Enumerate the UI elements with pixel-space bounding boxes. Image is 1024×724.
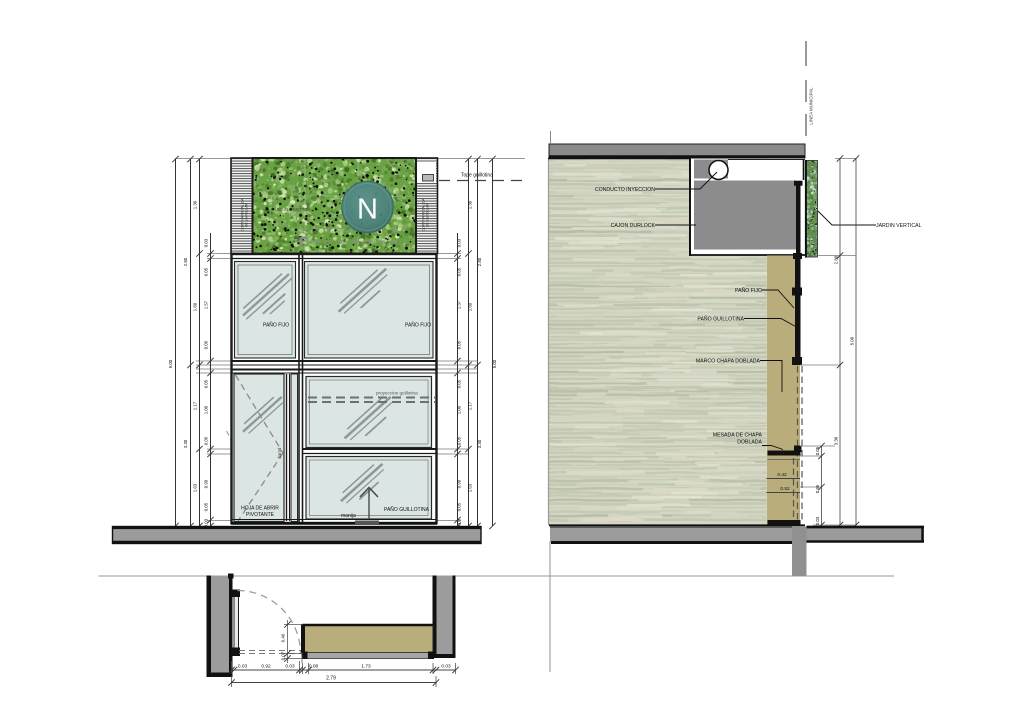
svg-text:1.60: 1.60 (193, 302, 198, 311)
svg-text:1.00: 1.00 (204, 405, 209, 414)
svg-text:0.05: 0.05 (204, 267, 209, 276)
svg-text:0.03: 0.03 (204, 238, 209, 247)
svg-text:0.95: 0.95 (815, 484, 820, 493)
svg-text:0.05: 0.05 (204, 502, 209, 511)
svg-text:HOJA DE ABRIR: HOJA DE ABRIR (241, 506, 279, 512)
svg-text:0.05: 0.05 (457, 379, 462, 388)
svg-text:0.08: 0.08 (309, 664, 319, 670)
svg-text:5.00: 5.00 (850, 336, 855, 345)
svg-text:JARDIN VERTICAL: JARDIN VERTICAL (271, 207, 313, 213)
svg-text:0.03: 0.03 (238, 664, 248, 670)
svg-text:0.05: 0.05 (204, 436, 209, 445)
svg-text:PIVOTANTE: PIVOTANTE (246, 512, 275, 518)
svg-text:2.80: 2.80 (477, 257, 482, 266)
svg-text:Tope guillotina: Tope guillotina (461, 173, 493, 179)
svg-text:0.92: 0.92 (261, 664, 271, 670)
svg-text:0.05: 0.05 (457, 267, 462, 276)
svg-text:PAÑO GUILLOTINA: PAÑO GUILLOTINA (384, 506, 430, 513)
svg-text:N: N (357, 194, 378, 226)
svg-text:0.05: 0.05 (204, 340, 209, 349)
svg-text:0.03: 0.03 (441, 664, 451, 670)
svg-text:1.17: 1.17 (193, 401, 198, 410)
svg-text:3.30: 3.30 (834, 436, 839, 445)
svg-text:PAÑO FIJO: PAÑO FIJO (735, 287, 762, 294)
svg-text:0.05: 0.05 (457, 502, 462, 511)
svg-text:1.57: 1.57 (204, 300, 209, 309)
svg-text:DE ENROLLAR: DE ENROLLAR (245, 202, 249, 226)
svg-text:0.42: 0.42 (777, 472, 787, 478)
svg-text:MARCO CHAPA DOBLADA: MARCO CHAPA DOBLADA (696, 359, 761, 365)
svg-text:0.05: 0.05 (457, 340, 462, 349)
svg-text:1.00: 1.00 (457, 405, 462, 414)
svg-text:0.03: 0.03 (815, 516, 820, 525)
svg-text:2.80: 2.80 (834, 255, 839, 264)
svg-text:DE ENROLLAR: DE ENROLLAR (426, 202, 430, 226)
svg-text:JARDIN VERTICAL: JARDIN VERTICAL (876, 223, 922, 229)
svg-text:CAJON DURLOCK: CAJON DURLOCK (611, 223, 656, 229)
svg-text:1.30: 1.30 (468, 200, 473, 209)
svg-text:0.40: 0.40 (281, 633, 286, 642)
svg-text:DOBLADA: DOBLADA (737, 440, 762, 446)
svg-text:0.03: 0.03 (457, 238, 462, 247)
svg-text:1.63: 1.63 (193, 483, 198, 492)
svg-text:0.05: 0.05 (815, 446, 820, 455)
svg-text:3.30: 3.30 (183, 439, 188, 448)
svg-text:0.03: 0.03 (285, 664, 295, 670)
svg-text:barral: barral (277, 448, 282, 459)
svg-text:0.05: 0.05 (204, 379, 209, 388)
svg-text:1.73: 1.73 (361, 664, 371, 670)
svg-text:0.90: 0.90 (457, 479, 462, 488)
svg-text:1.63: 1.63 (468, 483, 473, 492)
svg-text:3.30: 3.30 (477, 439, 482, 448)
svg-text:5.00: 5.00 (492, 359, 497, 368)
svg-text:5.00: 5.00 (168, 359, 173, 368)
svg-text:CONDUCTO INYECCION: CONDUCTO INYECCION (595, 187, 655, 193)
svg-text:PAÑO FIJO: PAÑO FIJO (263, 322, 289, 329)
svg-text:1.37: 1.37 (457, 300, 462, 309)
svg-text:LINEA MUNICIPAL: LINEA MUNICIPAL (809, 87, 814, 125)
svg-text:proyeccion guillotina: proyeccion guillotina (376, 391, 418, 396)
svg-text:MESADA DE CHAPA: MESADA DE CHAPA (713, 433, 763, 439)
svg-text:0.05: 0.05 (457, 436, 462, 445)
svg-text:1.30: 1.30 (193, 200, 198, 209)
svg-text:1.17: 1.17 (468, 401, 473, 410)
svg-text:0.90: 0.90 (204, 479, 209, 488)
svg-text:0.52: 0.52 (780, 486, 790, 492)
svg-text:2.79: 2.79 (326, 676, 336, 682)
svg-text:PAÑO FIJO: PAÑO FIJO (405, 322, 431, 329)
svg-text:PAÑO GUILLOTINA: PAÑO GUILLOTINA (697, 316, 744, 323)
svg-text:0.07: 0.07 (281, 651, 286, 660)
svg-text:2.80: 2.80 (183, 257, 188, 266)
svg-text:manija: manija (341, 513, 356, 519)
svg-text:1.60: 1.60 (468, 302, 473, 311)
